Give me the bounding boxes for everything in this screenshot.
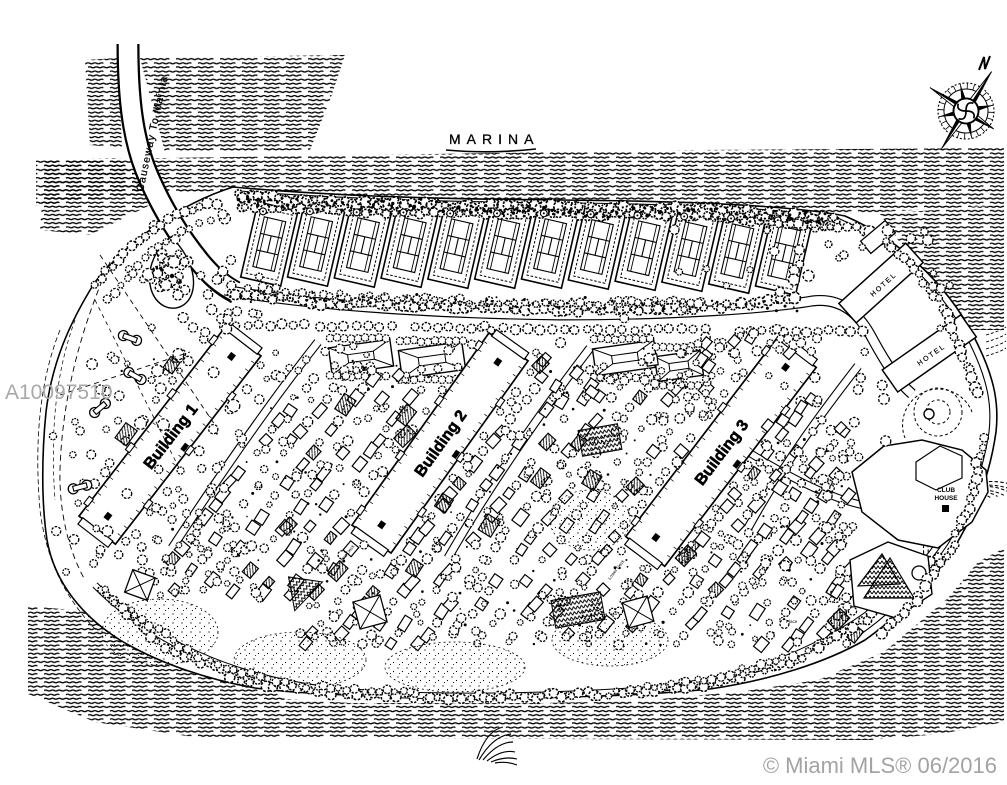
svg-text:CLUB: CLUB	[937, 487, 955, 494]
svg-text:MARINA: MARINA	[449, 131, 539, 147]
svg-text:A10097510: A10097510	[5, 381, 112, 404]
svg-text:Place: Place	[786, 619, 798, 624]
svg-text:© Miami MLS® 06/2016: © Miami MLS® 06/2016	[763, 753, 997, 778]
svg-text:HOUSE: HOUSE	[934, 495, 958, 502]
